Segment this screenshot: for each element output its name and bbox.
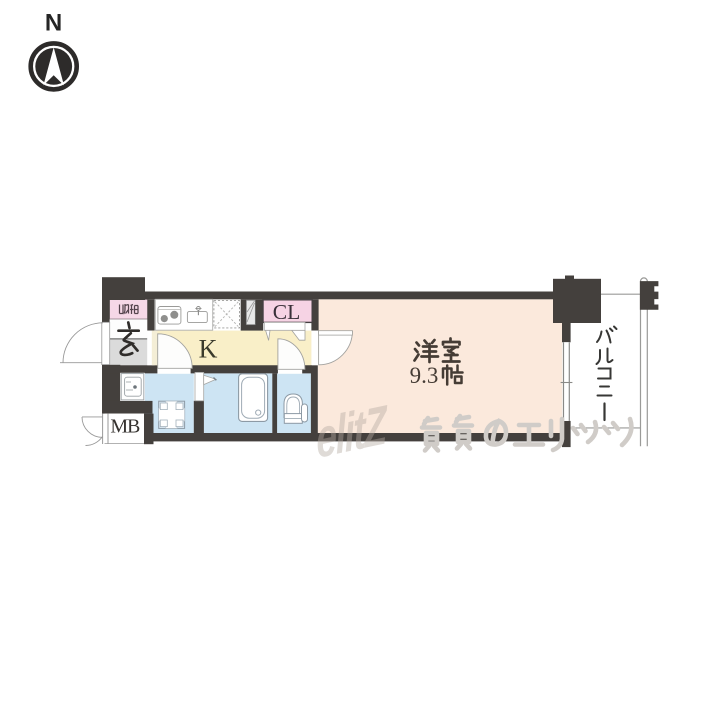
svg-text:MB: MB — [110, 416, 140, 438]
svg-text:K: K — [199, 335, 218, 364]
svg-text:N: N — [45, 10, 62, 37]
svg-text:CL: CL — [273, 300, 300, 324]
svg-text:9.3: 9.3 — [410, 363, 439, 388]
